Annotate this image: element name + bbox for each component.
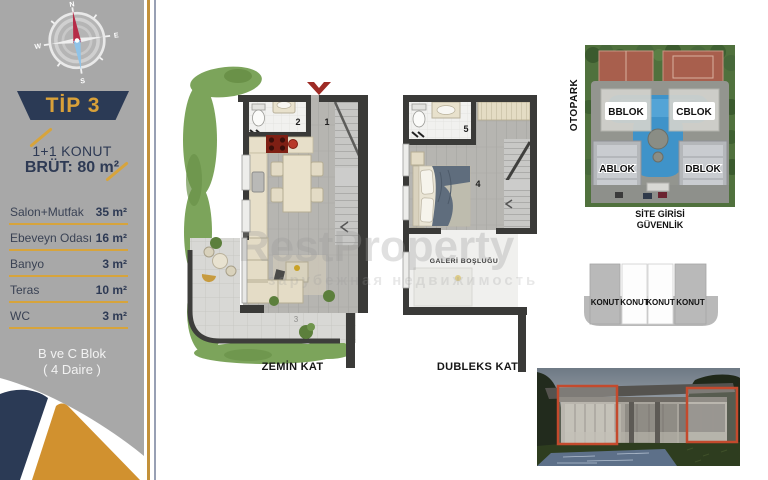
corner-wedge-decoration [0, 368, 144, 480]
table-row: Teras 10 m² [9, 279, 128, 303]
ground-plan-title: ZEMİN KAT [230, 361, 355, 373]
konut-unit-label: KONUT [676, 298, 705, 307]
nightstand [411, 152, 424, 165]
type-label: TİP 3 [46, 94, 101, 118]
room-number-bedroom: 4 [475, 179, 480, 189]
room-number-terrace: 3 [294, 315, 299, 324]
room-area: 10 m² [96, 283, 127, 297]
site-entrance-label: SİTE GİRİSİ GÜVENLİK [585, 209, 735, 231]
stairs [504, 139, 530, 230]
table-row: Salon+Mutfak 35 m² [9, 201, 128, 225]
entrance-road [591, 183, 729, 203]
room-area: 3 m² [102, 309, 127, 323]
car [615, 192, 623, 198]
block-b-label: BBLOK [608, 107, 644, 118]
unit-type: 1+1 KONUT [0, 143, 144, 159]
gallery-void: GALERİ BOŞLUĞU [409, 230, 518, 307]
duplex-plan-title: DUBLEKS KAT [415, 361, 540, 373]
konut-unit-label: KONUT [620, 298, 649, 307]
table-row: WC 3 m² [9, 305, 128, 329]
stairs [335, 102, 361, 245]
room-number-entry: 1 [324, 117, 329, 127]
entrance-arrow-icon [307, 82, 331, 95]
room-number-bath: 2 [295, 117, 300, 127]
table-row: Ebeveyn Odası 16 m² [9, 227, 128, 251]
compass-icon: N E S W [28, 0, 126, 88]
gallery-label: GALERİ BOŞLUĞU [430, 256, 499, 265]
ghost-sofa [414, 268, 472, 306]
room-label: Banyo [10, 257, 44, 271]
room-number-bath: 5 [463, 124, 468, 134]
block-c-footprint: CBLOK [669, 89, 719, 131]
sidebar: N E S W TİP 3 1+1 KONUT BRÜT: 80 m² Salo… [0, 0, 144, 480]
block-c-label: CBLOK [676, 107, 712, 118]
compass-e: E [114, 32, 120, 40]
toilet [413, 111, 425, 127]
room-area: 35 m² [96, 205, 127, 219]
block-a-label: ABLOK [599, 164, 635, 175]
otopark-label: OTOPARK [569, 60, 583, 150]
entrance-line1: SİTE GİRİSİ [585, 209, 735, 220]
car [643, 193, 652, 199]
compass-w: W [34, 43, 42, 51]
block-d-label: DBLOK [685, 164, 721, 175]
wc-room [243, 98, 311, 137]
room-label: Teras [10, 283, 39, 297]
table-row: Banyo 3 m² [9, 253, 128, 277]
site-plan-aerial: BBLOK CBLOK ABLOK DBLOK [585, 45, 735, 207]
block-name: B ve C Blok [0, 346, 144, 362]
block-b-footprint: BBLOK [601, 89, 651, 131]
table-decor [294, 265, 300, 271]
konut-section-diagram: KONUT KONUT KONUT KONUT [578, 262, 724, 328]
kitchen-sink [252, 172, 264, 192]
windows [403, 144, 409, 288]
outdoor-table [213, 254, 228, 269]
konut-unit-label: KONUT [646, 298, 675, 307]
compass-s: S [80, 78, 86, 86]
stove [266, 135, 288, 153]
ground-floor-plan: 1 2 3 [178, 60, 396, 372]
highlight-box-left [558, 386, 617, 444]
entrance-line2: GÜVENLİK [585, 220, 735, 231]
room-area: 3 m² [102, 257, 127, 271]
brochure-page: N E S W TİP 3 1+1 KONUT BRÜT: 80 m² Salo… [0, 0, 768, 480]
room-label: WC [10, 309, 30, 323]
exterior-render-image [537, 368, 740, 466]
car [658, 192, 667, 198]
type-banner: TİP 3 [17, 91, 129, 120]
highlight-box-right [687, 388, 737, 442]
gold-accent-line [147, 0, 150, 480]
konut-unit-label: KONUT [591, 298, 620, 307]
room-area: 16 m² [96, 231, 127, 245]
room-area-table: Salon+Mutfak 35 m² Ebeveyn Odası 16 m² B… [9, 201, 128, 331]
toilet [252, 104, 265, 110]
guard-house [647, 183, 669, 191]
wardrobe [478, 102, 530, 120]
pot [289, 140, 298, 149]
pool-island [648, 129, 668, 149]
room-label: Ebeveyn Odası [10, 231, 92, 245]
duplex-floor-plan: GALERİ BOŞLUĞU 4 5 [396, 82, 548, 372]
compass-n: N [69, 1, 75, 9]
slate-accent-line [154, 0, 156, 480]
terrace-wall-stub [346, 311, 355, 368]
room-label: Salon+Mutfak [10, 205, 84, 219]
